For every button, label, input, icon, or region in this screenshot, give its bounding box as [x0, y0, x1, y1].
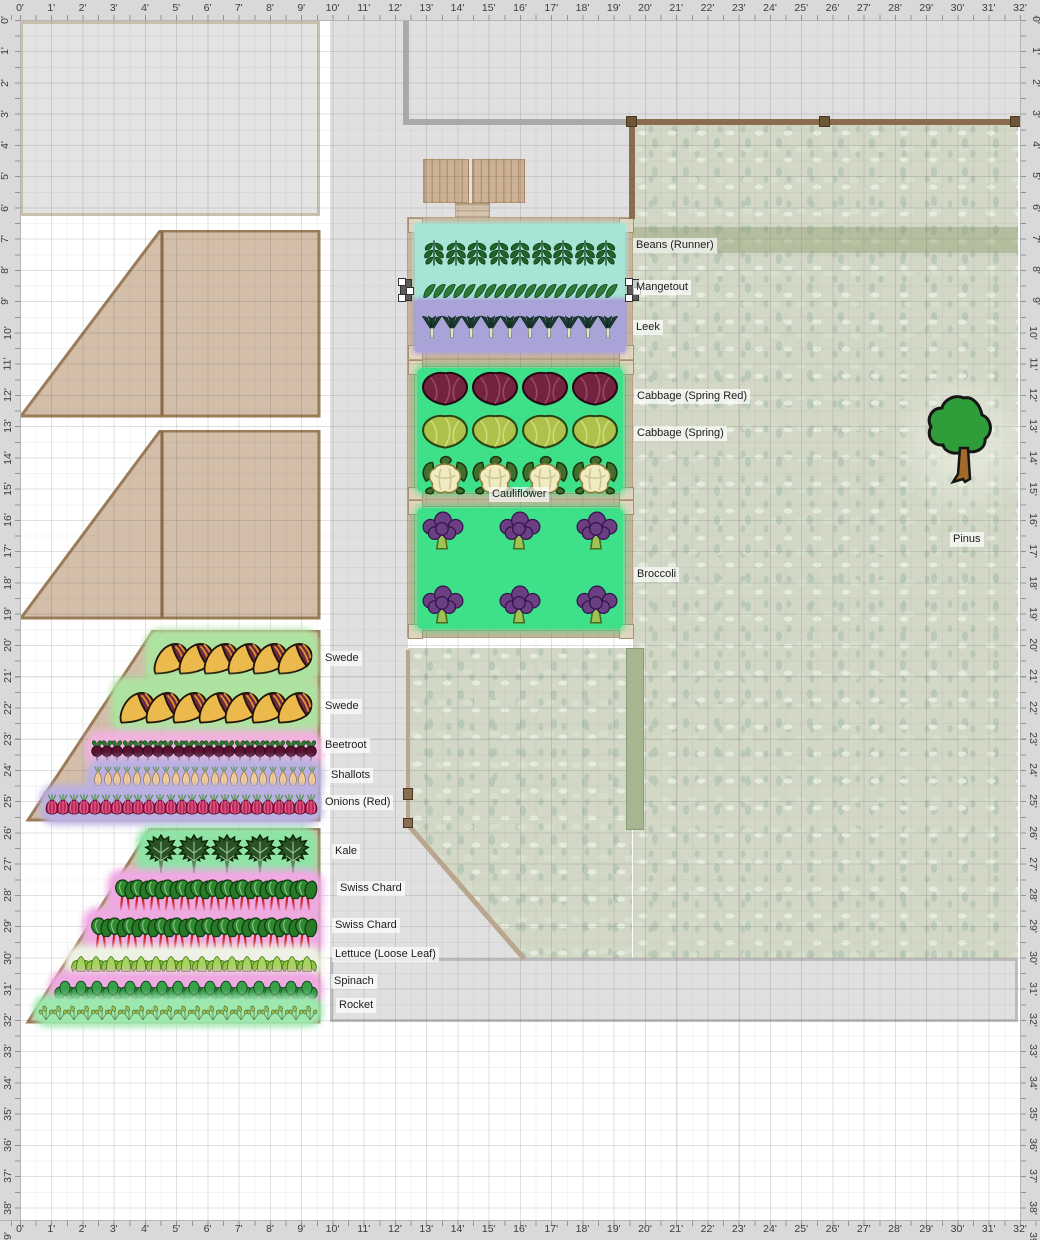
- ruler-tick-label: 13': [419, 2, 433, 14]
- ruler-tick-label: 35': [2, 1107, 14, 1121]
- ruler-tick-label: 15': [1027, 482, 1039, 496]
- plant-row-icons[interactable]: [420, 226, 620, 280]
- ruler-tick-label: 8': [1030, 266, 1040, 274]
- ruler-tick-label: 14': [451, 2, 465, 14]
- ruler-tick-label: 36': [1027, 1138, 1039, 1152]
- ruler-tick-label: 19': [607, 1223, 621, 1235]
- cabbage-red-icon: [520, 368, 570, 412]
- broccoli-icon: [574, 582, 620, 628]
- ruler-tick-label: 25': [794, 2, 808, 14]
- cabbage-red-icon: [470, 368, 520, 412]
- ruler-tick-label: 6': [204, 2, 212, 14]
- plant-row-icons[interactable]: [420, 410, 620, 456]
- ruler-tick-label: 29': [1027, 919, 1039, 933]
- ruler-tick-label: 21': [1027, 669, 1039, 683]
- ruler-tick-label: 2': [1030, 79, 1040, 87]
- plant-label[interactable]: Kale: [332, 844, 360, 859]
- swiss-chard-icon: [292, 876, 318, 914]
- ruler-tick-label: 22': [1027, 701, 1039, 715]
- plant-row-icons[interactable]: [142, 834, 312, 876]
- ruler-tick-label: 19': [2, 607, 14, 621]
- ruler-tick-label: 15': [482, 2, 496, 14]
- ruler-tick-label: 7': [0, 235, 11, 243]
- ruler-tick-label: 6': [1030, 204, 1040, 212]
- ruler-tick-label: 11': [1028, 357, 1040, 370]
- ruler-tick-label: 37': [1027, 1169, 1039, 1183]
- ruler-tick-label: 39': [1027, 1232, 1039, 1240]
- ruler-tick-label: 5': [172, 1223, 180, 1235]
- ruler-tick-label: 28': [888, 2, 902, 14]
- ruler-tick-label: 24': [1027, 763, 1039, 777]
- ruler-tick-label: 26': [2, 826, 14, 840]
- ruler-bottom: 0'1'2'3'4'5'6'7'8'9'10'11'12'13'14'15'16…: [0, 1220, 1040, 1240]
- ruler-tick-label: 29': [2, 919, 14, 933]
- plant-label[interactable]: Broccoli: [634, 567, 679, 582]
- ruler-tick-label: 16': [2, 513, 14, 527]
- ruler-tick-label: 18': [1027, 576, 1039, 590]
- leek-icon: [596, 302, 620, 352]
- kale-icon: [274, 834, 312, 876]
- ruler-tick-label: 6': [0, 204, 11, 212]
- fence-post: [403, 818, 413, 828]
- ruler-tick-label: 23': [1027, 732, 1039, 746]
- ruler-tick-label: 20': [638, 2, 652, 14]
- ruler-tick-label: 12': [1027, 388, 1039, 402]
- cauliflower-icon: [570, 454, 620, 496]
- plant-label[interactable]: Mangetout: [633, 280, 691, 295]
- ruler-tick-label: 30': [2, 951, 14, 965]
- plant-label[interactable]: Swede: [322, 651, 362, 666]
- ruler-tick-label: 27': [2, 857, 14, 871]
- ruler-tick-label: 12': [2, 388, 14, 402]
- ruler-tick-label: 25': [2, 794, 14, 808]
- ruler-tick-label: 16': [513, 1223, 527, 1235]
- ruler-tick-label: 7': [235, 1223, 243, 1235]
- ruler-tick-label: 11': [357, 1223, 370, 1235]
- patio-area[interactable]: [20, 21, 320, 216]
- ruler-tick-label: 9': [297, 2, 305, 14]
- ruler-left: 0'1'2'3'4'5'6'7'8'9'10'11'12'13'14'15'16…: [0, 20, 21, 1220]
- ruler-tick-label: 10': [1027, 326, 1039, 340]
- broccoli-icon: [497, 582, 543, 628]
- ruler-tick-label: 24': [2, 763, 14, 777]
- onion-red-icon: [304, 790, 318, 820]
- plant-row-icons[interactable]: [420, 582, 620, 628]
- ruler-tick-label: 28': [888, 1223, 902, 1235]
- ruler-tick-label: 33': [1027, 1044, 1039, 1058]
- plant-row-icons[interactable]: [92, 763, 318, 791]
- ruler-tick-label: 14': [2, 451, 14, 465]
- plant-label[interactable]: Cabbage (Spring Red): [634, 389, 750, 404]
- plant-label[interactable]: Swede: [322, 699, 362, 714]
- ruler-tick-label: 2': [0, 79, 11, 87]
- ruler-tick-label: 26': [826, 1223, 840, 1235]
- ruler-tick-label: 1': [0, 47, 11, 55]
- ruler-tick-label: 11': [1, 357, 13, 370]
- ruler-tick-label: 4': [141, 1223, 149, 1235]
- plant-label[interactable]: Onions (Red): [322, 795, 393, 810]
- ruler-tick-label: 17': [544, 2, 558, 14]
- plant-label[interactable]: Swiss Chard: [337, 881, 405, 896]
- ruler-tick-label: 32': [1013, 1223, 1027, 1235]
- ruler-tick-label: 11': [357, 2, 370, 14]
- ruler-tick-label: 4': [0, 141, 11, 149]
- ruler-tick-label: 18': [2, 576, 14, 590]
- shallot-icon: [306, 763, 318, 791]
- ruler-tick-label: 23': [732, 2, 746, 14]
- plant-row-icons[interactable]: [420, 368, 620, 412]
- plant-label[interactable]: Spinach: [331, 974, 377, 989]
- ruler-tick-label: 32': [2, 1013, 14, 1027]
- ruler-tick-label: 31': [982, 2, 996, 14]
- wood-structure-panel[interactable]: [472, 159, 525, 203]
- raised-bed-empty-2[interactable]: [20, 430, 322, 620]
- ruler-tick-label: 15': [2, 482, 14, 496]
- cabbage-red-icon: [420, 368, 470, 412]
- ruler-tick-label: 28': [2, 888, 14, 902]
- ruler-tick-label: 25': [794, 1223, 808, 1235]
- fence-gray-horizontal[interactable]: [403, 119, 635, 125]
- plant-row-icons[interactable]: [70, 952, 318, 976]
- ruler-tick-label: 8': [0, 266, 11, 274]
- ruler-tick-label: 9': [297, 1223, 305, 1235]
- ruler-tick-label: 30': [951, 2, 965, 14]
- ruler-tick-label: 17': [2, 544, 14, 558]
- ruler-tick-label: 3': [110, 2, 118, 14]
- ruler-tick-label: 5': [172, 2, 180, 14]
- plant-label[interactable]: Shallots: [328, 768, 373, 783]
- plant-label[interactable]: Rocket: [336, 998, 376, 1013]
- ruler-tick-label: 28': [1027, 888, 1039, 902]
- ruler-tick-label: 12': [388, 1223, 402, 1235]
- ruler-tick-label: 19': [607, 2, 621, 14]
- ruler-tick-label: 10': [326, 2, 340, 14]
- ruler-tick-label: 21': [669, 2, 683, 14]
- ruler-tick-label: 23': [2, 732, 14, 746]
- bean-runner-icon: [592, 226, 620, 280]
- ruler-tick-label: 12': [388, 2, 402, 14]
- plant-row-icons[interactable]: [420, 280, 620, 300]
- ruler-tick-label: 13': [419, 1223, 433, 1235]
- plant-row-icons[interactable]: [420, 302, 620, 352]
- selection-handle[interactable]: [400, 279, 412, 301]
- ruler-tick-label: 39': [2, 1232, 14, 1240]
- ruler-tick-label: 31': [982, 1223, 996, 1235]
- ruler-tick-label: 27': [1027, 857, 1039, 871]
- cabbage-green-icon: [520, 410, 570, 456]
- ruler-tick-label: 38': [2, 1201, 14, 1215]
- ruler-tick-label: 27': [857, 1223, 871, 1235]
- ruler-right: 0'1'2'3'4'5'6'7'8'9'10'11'12'13'14'15'16…: [1020, 20, 1040, 1220]
- ruler-tick-label: 35': [1027, 1107, 1039, 1121]
- ruler-tick-label: 2': [79, 1223, 87, 1235]
- ruler-tick-label: 14': [451, 1223, 465, 1235]
- ruler-tick-label: 15': [482, 1223, 496, 1235]
- swede-icon: [274, 638, 314, 680]
- ruler-tick-label: 26': [826, 2, 840, 14]
- swede-icon: [274, 686, 314, 730]
- ruler-tick-label: 7': [235, 2, 243, 14]
- cauliflower-icon: [420, 454, 470, 496]
- ruler-tick-label: 1': [1030, 47, 1040, 55]
- plant-label[interactable]: Cabbage (Spring): [634, 426, 727, 441]
- fence-gray-vertical[interactable]: [403, 20, 409, 123]
- rocket-icon: [302, 1002, 318, 1022]
- plant-row-icons[interactable]: [150, 638, 314, 680]
- plant-label[interactable]: Swiss Chard: [332, 918, 400, 933]
- ruler-tick-label: 1': [47, 2, 55, 14]
- ruler-tick-label: 16': [1027, 513, 1039, 527]
- ruler-tick-label: 37': [2, 1169, 14, 1183]
- ruler-tick-label: 0': [1030, 16, 1040, 24]
- ruler-tick-label: 10': [326, 1223, 340, 1235]
- ruler-tick-label: 3': [0, 110, 11, 118]
- plant-label[interactable]: Beans (Runner): [633, 238, 717, 253]
- ruler-tick-label: 4': [1030, 141, 1040, 149]
- ruler-tick-label: 30': [951, 1223, 965, 1235]
- ruler-tick-label: 10': [2, 326, 14, 340]
- ruler-tick-label: 2': [79, 2, 87, 14]
- ruler-tick-label: 20': [638, 1223, 652, 1235]
- ruler-tick-label: 4': [141, 2, 149, 14]
- broccoli-icon: [574, 508, 620, 554]
- wood-structure-panel[interactable]: [423, 159, 469, 203]
- plant-label[interactable]: Pinus: [950, 532, 984, 547]
- ruler-tick-label: 9': [1030, 297, 1040, 305]
- ruler-tick-label: 23': [732, 1223, 746, 1235]
- ruler-tick-label: 20': [2, 638, 14, 652]
- ruler-tick-label: 38': [1027, 1201, 1039, 1215]
- ruler-tick-label: 29': [919, 1223, 933, 1235]
- ruler-tick-label: 25': [1027, 794, 1039, 808]
- ruler-tick-label: 36': [2, 1138, 14, 1152]
- ruler-tick-label: 31': [2, 982, 14, 996]
- ruler-tick-label: 5': [0, 172, 11, 180]
- ruler-tick-label: 30': [1027, 951, 1039, 965]
- plant-row-icons[interactable]: [54, 978, 318, 1002]
- ruler-tick-label: 13': [1027, 419, 1039, 433]
- plant-label[interactable]: Lettuce (Loose Leaf): [332, 947, 439, 962]
- ruler-tick-label: 18': [576, 2, 590, 14]
- broccoli-icon: [420, 582, 466, 628]
- plant-row-icons[interactable]: [90, 735, 318, 765]
- cabbage-red-icon: [570, 368, 620, 412]
- ruler-tick-label: 22': [701, 1223, 715, 1235]
- ruler-tick-label: 24': [763, 1223, 777, 1235]
- garden-plan-canvas[interactable]: 0'1'2'3'4'5'6'7'8'9'10'11'12'13'14'15'16…: [0, 0, 1040, 1240]
- ruler-tick-label: 0': [16, 2, 24, 14]
- ruler-tick-label: 32': [1013, 2, 1027, 14]
- ruler-tick-label: 0': [0, 16, 11, 24]
- ruler-tick-label: 21': [2, 669, 14, 683]
- lettuce-icon: [296, 952, 318, 976]
- path-bottom: [330, 958, 1018, 1022]
- cabbage-green-icon: [420, 410, 470, 456]
- ruler-tick-label: 17': [1027, 544, 1039, 558]
- fence-post: [819, 116, 830, 127]
- ruler-top: 0'1'2'3'4'5'6'7'8'9'10'11'12'13'14'15'16…: [0, 0, 1040, 21]
- ruler-tick-label: 1': [47, 1223, 55, 1235]
- plant-row-icons[interactable]: [45, 790, 318, 820]
- ruler-tick-label: 22': [701, 2, 715, 14]
- ruler-tick-label: 20': [1027, 638, 1039, 652]
- plant-row-icons[interactable]: [116, 686, 314, 730]
- raised-bed-empty-1[interactable]: [20, 230, 322, 418]
- fence-post: [403, 788, 413, 800]
- broccoli-icon: [497, 508, 543, 554]
- ruler-tick-label: 13': [2, 419, 14, 433]
- swiss-chard-icon: [292, 914, 318, 952]
- ruler-tick-label: 22': [2, 701, 14, 715]
- ruler-tick-label: 32': [1027, 1013, 1039, 1027]
- ruler-tick-label: 8': [266, 2, 274, 14]
- ruler-tick-label: 8': [266, 1223, 274, 1235]
- ruler-tick-label: 31': [1027, 982, 1039, 996]
- plant-label[interactable]: Beetroot: [322, 738, 370, 753]
- beetroot-icon: [304, 735, 318, 765]
- ruler-tick-label: 5': [1030, 172, 1040, 180]
- plant-row-icons[interactable]: [420, 508, 620, 554]
- cabbage-green-icon: [470, 410, 520, 456]
- plant-label[interactable]: Leek: [633, 320, 663, 335]
- ruler-tick-label: 34': [2, 1076, 14, 1090]
- cabbage-green-icon: [570, 410, 620, 456]
- ruler-tick-label: 34': [1027, 1076, 1039, 1090]
- hedge-strip[interactable]: [626, 648, 644, 830]
- ruler-tick-label: 9': [0, 297, 11, 305]
- plant-row-icons[interactable]: [112, 876, 318, 914]
- ruler-tick-label: 27': [857, 2, 871, 14]
- fence-lawn-left[interactable]: [629, 119, 635, 219]
- wood-structure-step[interactable]: [455, 203, 490, 218]
- ruler-tick-label: 19': [1027, 607, 1039, 621]
- ruler-tick-label: 21': [669, 1223, 683, 1235]
- fence-post: [626, 116, 637, 127]
- ruler-tick-label: 14': [1027, 451, 1039, 465]
- ruler-tick-label: 26': [1027, 826, 1039, 840]
- ruler-tick-label: 29': [919, 2, 933, 14]
- ruler-tick-label: 18': [576, 1223, 590, 1235]
- broccoli-icon: [420, 508, 466, 554]
- ruler-tick-label: 7': [1030, 235, 1040, 243]
- ruler-tick-label: 6': [204, 1223, 212, 1235]
- ruler-tick-label: 3': [1030, 110, 1040, 118]
- tree-pinus[interactable]: [922, 392, 1006, 492]
- ruler-tick-label: 0': [16, 1223, 24, 1235]
- ruler-tick-label: 24': [763, 2, 777, 14]
- ruler-tick-label: 3': [110, 1223, 118, 1235]
- plant-row-icons[interactable]: [88, 914, 318, 952]
- ruler-tick-label: 33': [2, 1044, 14, 1058]
- path-top: [330, 20, 1020, 122]
- plant-row-icons[interactable]: [38, 1002, 318, 1022]
- plant-label[interactable]: Cauliflower: [489, 487, 549, 502]
- mangetout-icon: [602, 280, 620, 300]
- spinach-icon: [296, 978, 318, 1002]
- ruler-tick-label: 16': [513, 2, 527, 14]
- ruler-tick-label: 17': [544, 1223, 558, 1235]
